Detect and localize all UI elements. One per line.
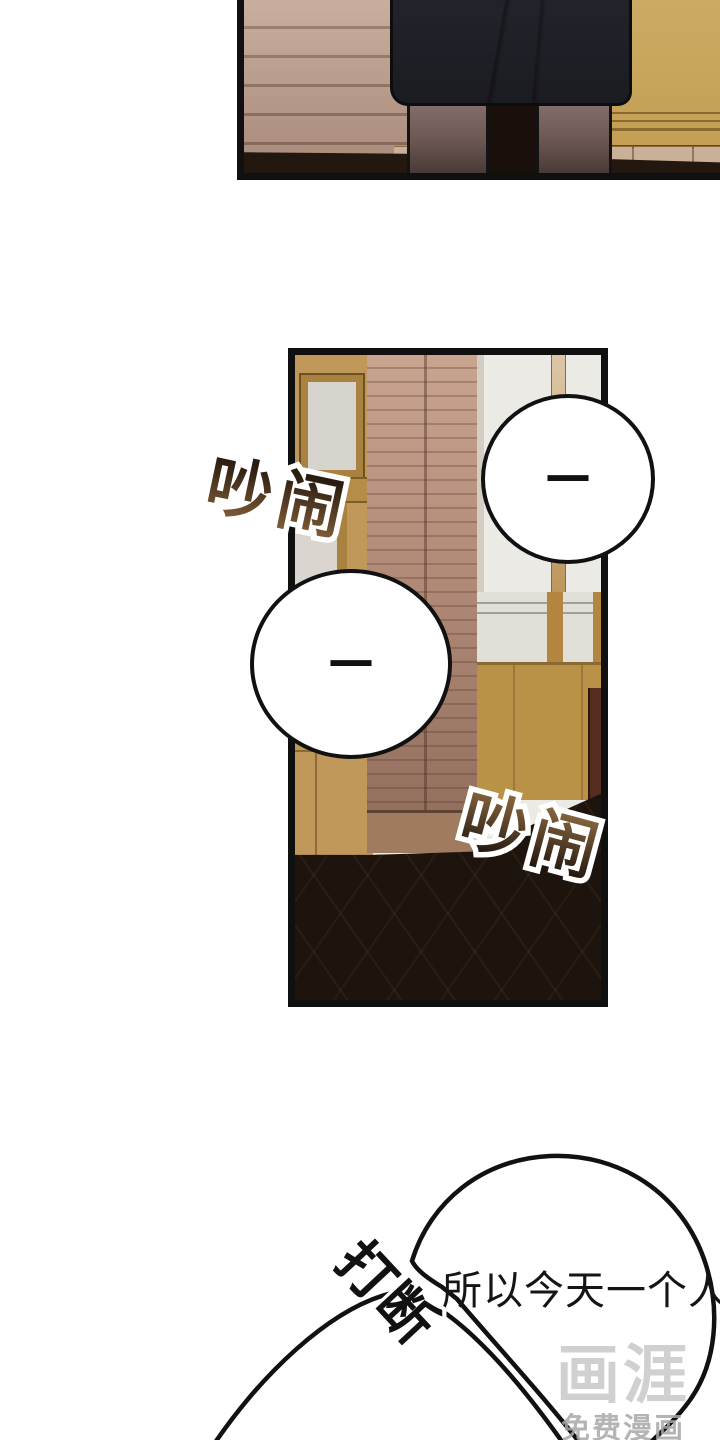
window-mullion — [593, 592, 601, 662]
character-leg-right — [536, 96, 612, 173]
character-skirt — [390, 0, 632, 106]
pause-dash: — — [328, 637, 374, 683]
window-band — [477, 592, 601, 662]
watermark-tagline: 免费漫画 — [556, 1414, 690, 1440]
panel-top — [237, 0, 720, 180]
pause-dash: — — [545, 452, 591, 498]
window-mullion — [547, 592, 563, 662]
leg-shadow — [484, 98, 540, 173]
character-leg-left — [407, 96, 489, 173]
tan-wainscot — [477, 662, 601, 800]
door-window — [301, 375, 363, 477]
speech-bubble-pause-1: — — [481, 394, 655, 564]
dialog-text: 所以今天一个人， — [442, 1258, 720, 1316]
watermark-logo: 画涯 — [556, 1344, 690, 1408]
watermark: 画涯 免费漫画 — [556, 1344, 690, 1440]
speech-bubble-pause-2: — — [250, 569, 452, 759]
comic-page: — — 吵闹 吵闹 吵闹 吵闹 打断 所以今天一个人， 画涯 免费漫画 — [0, 0, 720, 1440]
